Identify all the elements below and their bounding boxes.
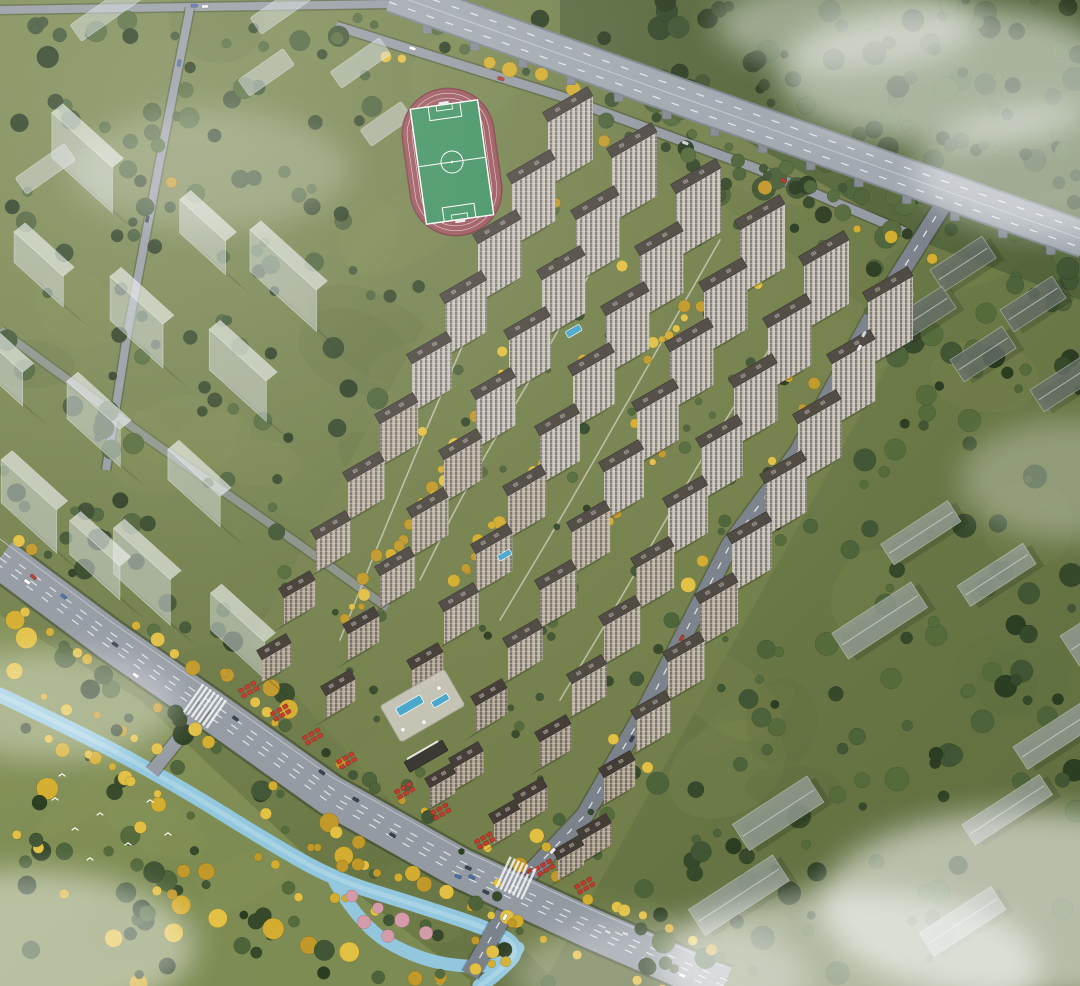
scene-canvas [0,0,1080,986]
aerial-render [0,0,1080,986]
fog-cloud [70,110,350,230]
